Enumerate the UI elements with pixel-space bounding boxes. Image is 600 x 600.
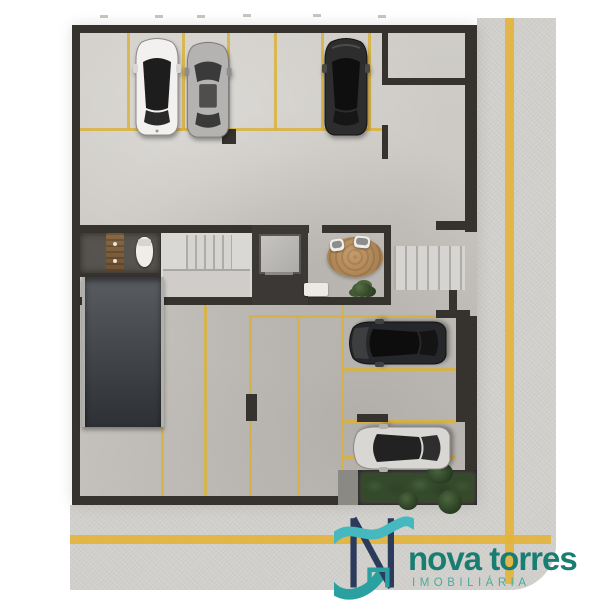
entry-staircase bbox=[394, 246, 465, 290]
parking-line bbox=[297, 317, 300, 496]
wall-top bbox=[72, 25, 477, 33]
black-car bbox=[322, 32, 370, 140]
logo-subtitle: IMOBILIÁRIA bbox=[412, 578, 531, 590]
nova-torres-monogram-icon bbox=[334, 504, 414, 600]
parking-line bbox=[274, 33, 277, 130]
dimension-tick bbox=[100, 15, 108, 18]
wall-stub bbox=[382, 125, 388, 159]
logo-title: nova torres bbox=[408, 542, 577, 575]
vanity-knob-icon bbox=[113, 242, 117, 246]
elevator-car bbox=[259, 234, 301, 274]
dimension-tick bbox=[155, 15, 163, 18]
stair-treads bbox=[186, 235, 232, 269]
wall-right-parking bbox=[456, 310, 470, 422]
column bbox=[246, 394, 257, 421]
stair-landing bbox=[163, 269, 250, 297]
wall-room-left bbox=[382, 33, 388, 80]
floor-plan-canvas: nova torres IMOBILIÁRIA bbox=[0, 0, 600, 600]
lobby-chair bbox=[353, 235, 370, 249]
dimension-tick bbox=[243, 14, 251, 17]
dark-suv bbox=[347, 319, 447, 367]
elevator-shaft bbox=[252, 225, 308, 305]
lobby-plant bbox=[352, 282, 372, 297]
nova-torres-logo: nova torres IMOBILIÁRIA bbox=[330, 498, 598, 598]
lobby-bench bbox=[304, 283, 328, 296]
wall-right-upper bbox=[465, 25, 477, 232]
parking-line bbox=[249, 315, 344, 318]
wall-midband-top bbox=[322, 225, 384, 233]
dimension-tick bbox=[313, 14, 321, 17]
lobby-chair bbox=[329, 238, 345, 252]
vanity-knob-icon bbox=[113, 259, 117, 263]
wall-entry-top bbox=[436, 221, 467, 230]
silver-car bbox=[184, 38, 232, 140]
parking-line bbox=[341, 305, 344, 496]
dimension-tick bbox=[378, 15, 386, 18]
wall-left bbox=[72, 25, 80, 505]
white-car bbox=[131, 34, 183, 138]
bathroom-vanity bbox=[106, 233, 124, 271]
parking-line bbox=[127, 33, 130, 130]
wall-lobby-right bbox=[384, 225, 391, 305]
elevator-door bbox=[265, 272, 293, 275]
wall-room-bottom bbox=[382, 78, 477, 85]
dimension-tick bbox=[197, 15, 205, 18]
wall-stub bbox=[357, 414, 388, 422]
parking-line bbox=[204, 305, 207, 496]
main-staircase bbox=[161, 233, 252, 297]
parking-line bbox=[344, 368, 456, 371]
access-ramp bbox=[82, 277, 164, 427]
toilet bbox=[136, 237, 153, 267]
silver-car-lower bbox=[351, 425, 451, 471]
